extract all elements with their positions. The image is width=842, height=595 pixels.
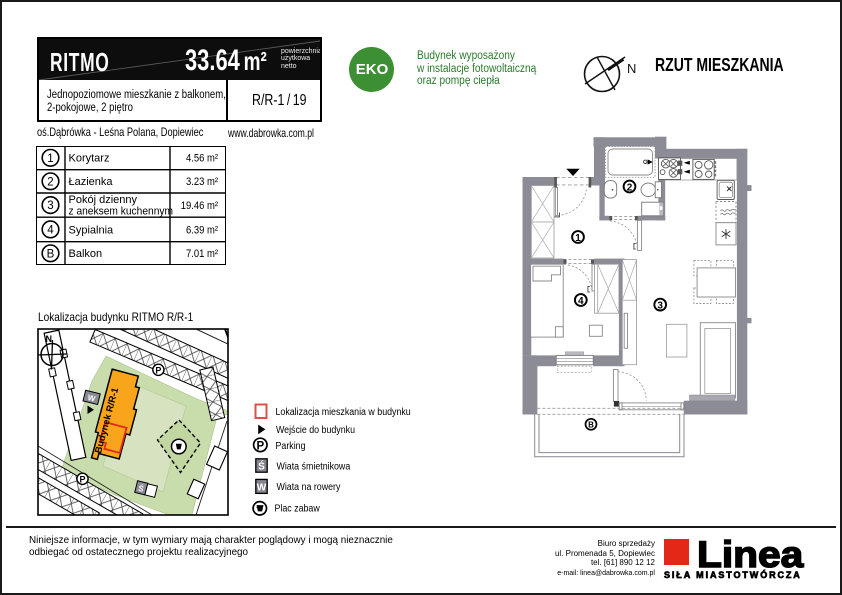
svg-text:1: 1 xyxy=(575,233,581,244)
svg-text:z aneksem kuchennym: z aneksem kuchennym xyxy=(69,205,174,217)
svg-text:Balkon: Balkon xyxy=(69,248,103,260)
svg-text:3.23 m²: 3.23 m² xyxy=(186,177,219,189)
svg-text:P: P xyxy=(79,474,85,484)
svg-text:4: 4 xyxy=(578,296,584,307)
svg-text:Parking: Parking xyxy=(275,440,305,452)
svg-text:Wiata śmietnikowa: Wiata śmietnikowa xyxy=(277,461,351,473)
svg-text:3: 3 xyxy=(47,200,53,212)
svg-text:Sypialnia: Sypialnia xyxy=(69,224,115,236)
svg-text:Wejście do budynku: Wejście do budynku xyxy=(276,424,355,436)
svg-text:N: N xyxy=(46,334,53,344)
svg-text:Łazienka: Łazienka xyxy=(69,176,114,188)
svg-text:P: P xyxy=(256,440,264,452)
svg-text:3: 3 xyxy=(657,300,663,311)
svg-text:Korytarz: Korytarz xyxy=(69,153,110,165)
svg-text:4.56 m²: 4.56 m² xyxy=(186,153,219,165)
svg-text:1: 1 xyxy=(47,153,53,165)
svg-text:N: N xyxy=(627,61,636,76)
svg-text:2: 2 xyxy=(627,182,633,193)
svg-text:6.39 m²: 6.39 m² xyxy=(186,225,219,237)
svg-text:Ś: Ś xyxy=(258,460,265,473)
svg-text:4: 4 xyxy=(47,224,54,236)
svg-text:Lokalizacja mieszkania w budyn: Lokalizacja mieszkania w budynku xyxy=(275,406,410,418)
svg-text:B: B xyxy=(588,420,594,429)
svg-text:Plac zabaw: Plac zabaw xyxy=(275,503,320,515)
svg-text:7.01 m²: 7.01 m² xyxy=(186,249,219,261)
svg-text:W: W xyxy=(257,483,267,494)
svg-text:Wiata na rowery: Wiata na rowery xyxy=(277,481,341,493)
svg-text:B: B xyxy=(47,248,55,260)
svg-text:19.46 m²: 19.46 m² xyxy=(181,201,219,213)
svg-text:2: 2 xyxy=(47,176,53,188)
svg-text:P: P xyxy=(155,365,161,375)
